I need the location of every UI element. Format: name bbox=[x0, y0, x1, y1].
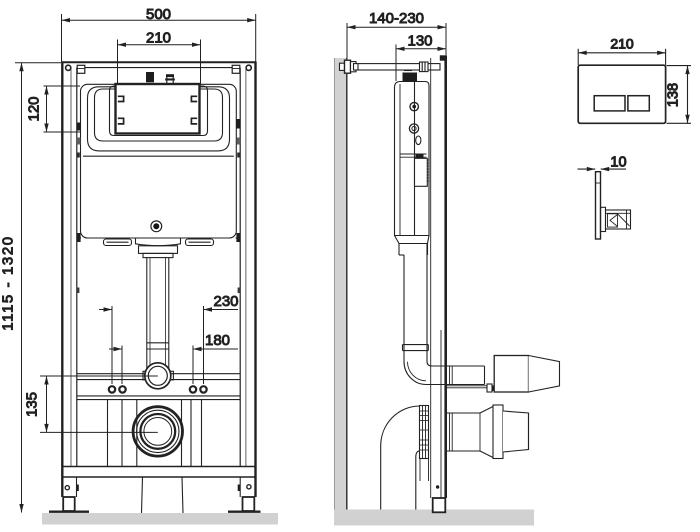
svg-text:180: 180 bbox=[205, 332, 230, 349]
svg-text:230: 230 bbox=[213, 293, 238, 310]
svg-text:1115 - 1320: 1115 - 1320 bbox=[0, 235, 17, 330]
svg-text:140-230: 140-230 bbox=[369, 10, 424, 27]
svg-text:130: 130 bbox=[407, 33, 432, 50]
svg-text:210: 210 bbox=[146, 29, 171, 46]
svg-text:500: 500 bbox=[146, 6, 171, 23]
svg-text:120: 120 bbox=[26, 96, 43, 121]
svg-text:210: 210 bbox=[610, 36, 634, 52]
svg-text:135: 135 bbox=[24, 392, 41, 417]
svg-text:138: 138 bbox=[666, 83, 682, 107]
svg-text:10: 10 bbox=[610, 154, 626, 170]
